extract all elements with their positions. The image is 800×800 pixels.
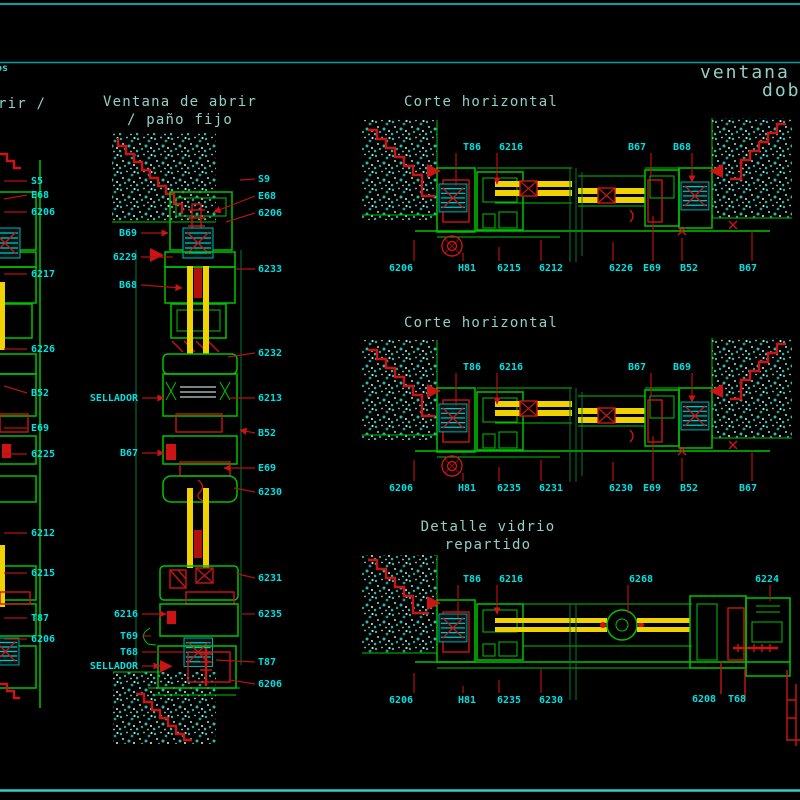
profile-label: B52 bbox=[31, 388, 49, 399]
profile-label: H81 bbox=[458, 263, 476, 274]
profile-label: T86 bbox=[463, 362, 481, 373]
profile-label: E69 bbox=[643, 263, 661, 274]
profile-label: 6224 bbox=[755, 574, 779, 585]
cad-viewport: os rir / Ventana de abrir / paño fijo Co… bbox=[0, 0, 800, 800]
profile-label: E69 bbox=[31, 423, 49, 434]
profile-label: T87 bbox=[31, 613, 49, 624]
profile-label: 6232 bbox=[258, 348, 282, 359]
title-ventana-line2: / paño fijo bbox=[127, 112, 233, 128]
profile-label: 6226 bbox=[609, 263, 633, 274]
profile-label: 6216 bbox=[499, 574, 523, 585]
mullion-profile bbox=[690, 596, 746, 668]
profile-label: 6206 bbox=[389, 483, 413, 494]
profile-label: T86 bbox=[463, 142, 481, 153]
profile-label: T68 bbox=[120, 647, 138, 658]
profile-label: S5 bbox=[31, 176, 43, 187]
profile-label: 6231 bbox=[539, 483, 563, 494]
leader-line bbox=[240, 179, 255, 180]
glass-spacer bbox=[196, 568, 213, 583]
seal-block bbox=[167, 611, 176, 624]
profile-label: 6206 bbox=[31, 634, 55, 645]
cad-canvas: os rir / Ventana de abrir / paño fijo Co… bbox=[0, 0, 800, 800]
profile-label: 6217 bbox=[31, 269, 55, 280]
leader-line bbox=[226, 213, 255, 222]
glass-pane bbox=[495, 618, 607, 623]
profile-label: E68 bbox=[31, 190, 49, 201]
profile-label: 6235 bbox=[497, 695, 521, 706]
glass-seal bbox=[194, 530, 202, 558]
profile-label: 6216 bbox=[499, 362, 523, 373]
screw-detail bbox=[183, 228, 213, 258]
profile-label: B52 bbox=[680, 263, 698, 274]
profile-label: 6230 bbox=[539, 695, 563, 706]
corte-horizontal-2-drawing bbox=[362, 338, 792, 482]
profile-label: 6268 bbox=[629, 574, 653, 585]
leader-line bbox=[4, 195, 27, 199]
glass-pane bbox=[0, 282, 5, 350]
profile-label: 6230 bbox=[258, 487, 282, 498]
leader-line bbox=[4, 386, 27, 393]
screw-detail bbox=[439, 614, 467, 642]
profile-label: B67 bbox=[120, 448, 138, 459]
seal-wedge bbox=[160, 660, 173, 673]
profile-label: 6226 bbox=[31, 344, 55, 355]
leader-line bbox=[230, 680, 255, 684]
profile-label: 6206 bbox=[258, 679, 282, 690]
stair-hatch-line bbox=[0, 684, 20, 698]
screw-detail bbox=[0, 638, 19, 665]
glass-pane bbox=[187, 488, 193, 568]
profile-label: SELLADOR bbox=[90, 393, 139, 404]
profile-label: 6215 bbox=[31, 568, 55, 579]
profile-label: E69 bbox=[643, 483, 661, 494]
profile-label: 6216 bbox=[499, 142, 523, 153]
profile-label: B69 bbox=[673, 362, 691, 373]
profile-label: H81 bbox=[458, 483, 476, 494]
profile-label: B52 bbox=[258, 428, 276, 439]
glass-pane bbox=[637, 618, 690, 623]
profile-label: B52 bbox=[680, 483, 698, 494]
profile-label: H81 bbox=[458, 695, 476, 706]
profile-label: 6206 bbox=[258, 208, 282, 219]
corner-text-fragment: os bbox=[0, 63, 8, 74]
glazing-bar-joiner bbox=[607, 610, 637, 640]
profile-label: B68 bbox=[673, 142, 691, 153]
profile-label: T87 bbox=[258, 657, 276, 668]
profile-label: E68 bbox=[258, 191, 276, 202]
profile-label: 6215 bbox=[497, 263, 521, 274]
profile-label: 6216 bbox=[114, 609, 138, 620]
title-corte-2: Corte horizontal bbox=[404, 315, 558, 331]
glass-seal bbox=[194, 268, 202, 298]
corte-horizontal-1-drawing bbox=[362, 118, 792, 262]
glass-pane bbox=[187, 266, 193, 354]
seal-block bbox=[166, 444, 176, 460]
title-corte-1: Corte horizontal bbox=[404, 94, 558, 110]
screw-detail bbox=[0, 228, 20, 258]
seal-wedge bbox=[150, 248, 164, 262]
profile-label: 6230 bbox=[609, 483, 633, 494]
profile-label: 6208 bbox=[692, 694, 716, 705]
title-right-line2: dob bbox=[762, 80, 800, 101]
profile-label: 6212 bbox=[539, 263, 563, 274]
detalle-vidrio-drawing bbox=[362, 555, 800, 746]
transom-profile bbox=[163, 354, 237, 374]
title-left-partial: rir / bbox=[0, 96, 46, 112]
profile-label: B67 bbox=[739, 263, 757, 274]
title-detalle-line2: repartido bbox=[445, 537, 532, 553]
wall-hatch bbox=[113, 672, 216, 744]
profile-label: 6212 bbox=[31, 528, 55, 539]
profile-label: T69 bbox=[120, 631, 138, 642]
profile-label: 6235 bbox=[258, 609, 282, 620]
profile-label: 6206 bbox=[389, 263, 413, 274]
profile-label: 6231 bbox=[258, 573, 282, 584]
profile-label: E69 bbox=[258, 463, 276, 474]
profile-label: B67 bbox=[739, 483, 757, 494]
leader-line bbox=[141, 285, 182, 288]
wall-hatch bbox=[362, 555, 437, 653]
frame-profile bbox=[746, 598, 790, 676]
profile-label: S9 bbox=[258, 174, 270, 185]
title-detalle-line1: Detalle vidrio bbox=[421, 519, 556, 535]
stair-hatch-line bbox=[0, 154, 21, 168]
profile-label: B67 bbox=[628, 362, 646, 373]
profile-label: 6213 bbox=[258, 393, 282, 404]
profile-label: 6235 bbox=[497, 483, 521, 494]
profile-label: T68 bbox=[728, 694, 746, 705]
profile-label: 6233 bbox=[258, 264, 282, 275]
profile-label: 6225 bbox=[31, 449, 55, 460]
profile-label: B67 bbox=[628, 142, 646, 153]
title-ventana-line1: Ventana de abrir bbox=[103, 94, 257, 110]
profile-label: T86 bbox=[463, 574, 481, 585]
profile-label: B69 bbox=[119, 228, 137, 239]
profile-label: SELLADOR bbox=[90, 661, 139, 672]
profile-label: 6206 bbox=[31, 207, 55, 218]
profile-label: 6229 bbox=[113, 252, 137, 263]
leader-line bbox=[240, 430, 255, 433]
profile-label: 6206 bbox=[389, 695, 413, 706]
glass-pane bbox=[0, 545, 5, 607]
profile-label: B68 bbox=[119, 280, 137, 291]
